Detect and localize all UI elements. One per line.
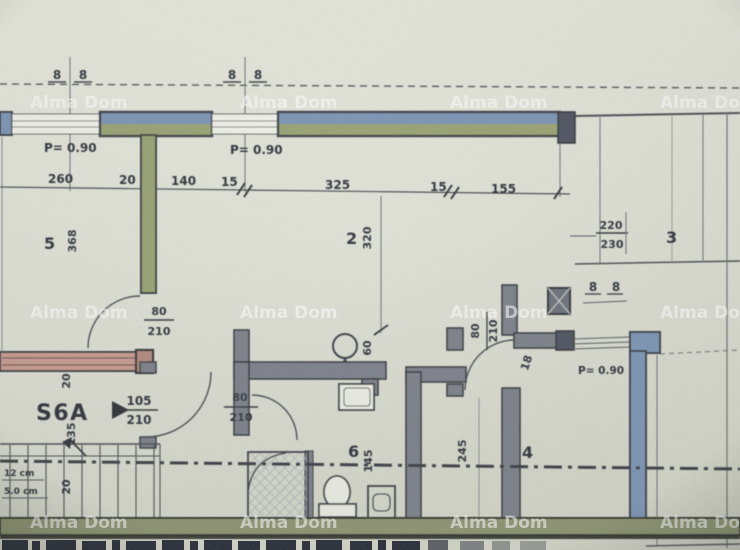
photo-vignette-overlay (0, 0, 740, 550)
floor-plan-photo: 8 8 8 8 (0, 0, 740, 550)
floor-plan: 8 8 8 8 (0, 0, 740, 550)
